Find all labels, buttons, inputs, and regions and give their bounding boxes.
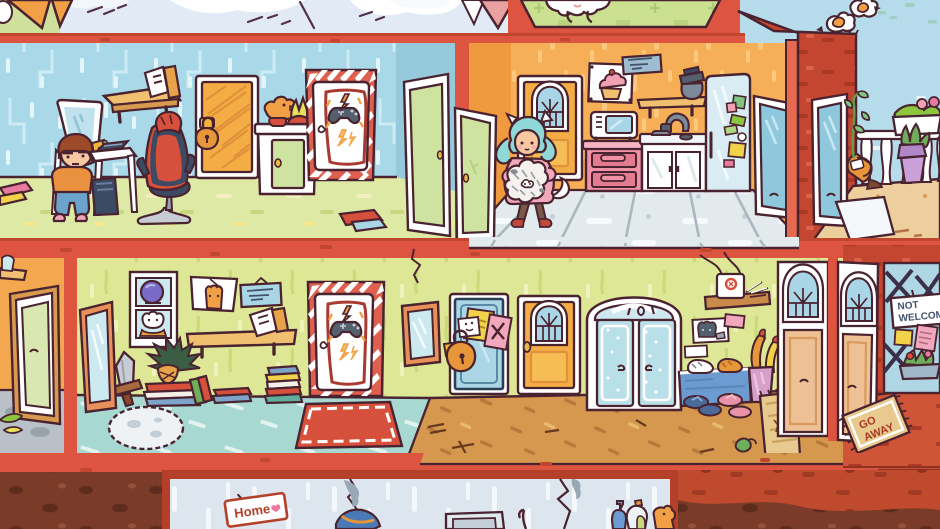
svg-text:NOT: NOT bbox=[897, 300, 919, 313]
